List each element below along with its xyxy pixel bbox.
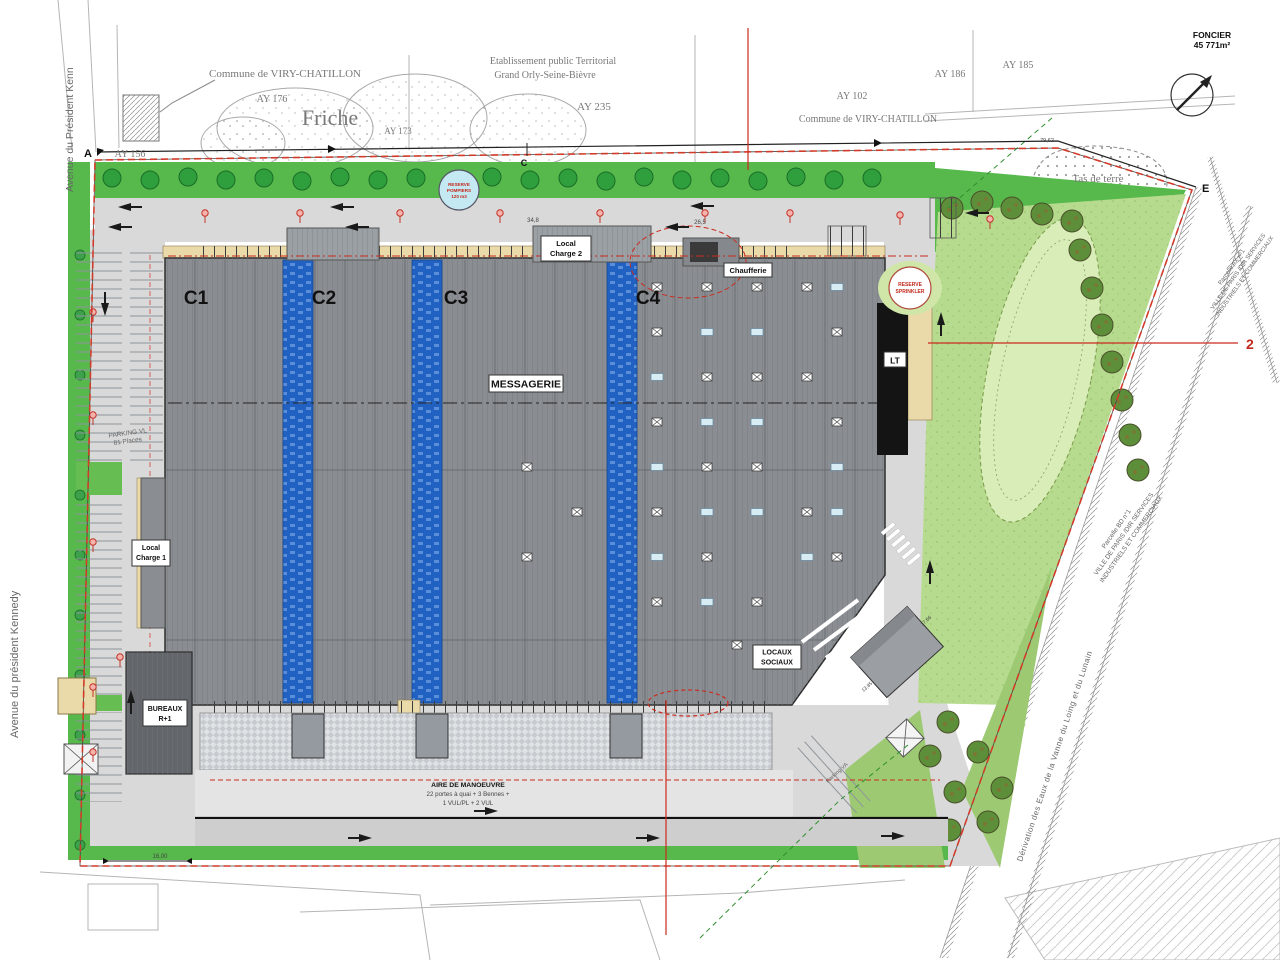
label-cell-c4: C4 xyxy=(636,288,661,309)
label-ay185: AY 185 xyxy=(1003,60,1034,71)
label-bureaux: BUREAUX xyxy=(148,706,183,713)
label-foncier: FONCIER xyxy=(1193,30,1231,40)
label-point-e: E xyxy=(1202,183,1209,195)
label-aire-manoeuvre: AIRE DE MANOEUVRE xyxy=(431,782,505,789)
label-ay176: AY 176 xyxy=(257,94,288,105)
svg-text:22 portes à quai + 3 Bennes +: 22 portes à quai + 3 Bennes + xyxy=(427,791,510,798)
label-commune-ne: Commune de VIRY-CHATILLON xyxy=(799,114,937,125)
label-avenue-left: Avenue du président Kennedy xyxy=(9,590,21,738)
svg-text:Charge 2: Charge 2 xyxy=(550,249,582,258)
label-ay102: AY 102 xyxy=(837,91,868,102)
label-ay235: AY 235 xyxy=(577,101,611,113)
label-friche: Friche xyxy=(302,105,358,130)
label-local-charge-2: Local xyxy=(556,239,576,248)
commune-leader-line xyxy=(160,80,215,112)
dim-26-5: 26,5 xyxy=(694,220,706,226)
label-ay186: AY 186 xyxy=(935,69,966,80)
label-messagerie: MESSAGERIE xyxy=(491,379,561,391)
mezzanine-band-2 xyxy=(412,260,442,703)
label-ay173: AY 173 xyxy=(384,126,412,136)
north-arrow-icon xyxy=(1171,74,1213,116)
label-ay156: AY 156 xyxy=(115,149,146,160)
svg-text:SPRINKLER: SPRINKLER xyxy=(896,289,925,295)
svg-text:120 m3: 120 m3 xyxy=(451,194,467,199)
svg-text:1 VUL/PL + 2 VUL: 1 VUL/PL + 2 VUL xyxy=(443,800,494,807)
dim-79-62: 79,62 xyxy=(1040,138,1054,144)
label-reserve-pompiers: RESERVE xyxy=(448,182,470,187)
label-point-c: C xyxy=(521,158,528,168)
label-ept-2: Grand Orly-Seine-Bièvre xyxy=(494,70,596,81)
northwest-hatched-building xyxy=(123,95,159,141)
label-local-charge-1: Local xyxy=(142,545,160,552)
label-avenue-top: Avenue du Président Kenn xyxy=(64,67,76,192)
label-locaux-sociaux: LOCAUX xyxy=(762,650,792,657)
mezzanine-band-1 xyxy=(283,260,313,703)
svg-text:R+1: R+1 xyxy=(158,716,171,723)
label-tas-de-terre: Tas de terre xyxy=(1072,173,1123,185)
label-cell-c1: C1 xyxy=(184,288,209,309)
label-cell-c2: C2 xyxy=(312,288,336,309)
dim-13-85: 13,85 xyxy=(861,681,874,694)
label-ref-2: 2 xyxy=(1246,336,1254,352)
svg-text:Charge 1: Charge 1 xyxy=(136,555,166,562)
label-chaufferie: Chaufferie xyxy=(729,266,766,275)
gatehouse xyxy=(58,678,96,714)
dim-34-8: 34,8 xyxy=(527,218,539,224)
label-foncier-area: 45 771m² xyxy=(1194,40,1231,50)
site-plan-page: MESSAGERIE C1 C2 C3 C4 Local Charge 2 Ch… xyxy=(0,0,1280,960)
label-cell-c3: C3 xyxy=(444,288,468,309)
lt-room xyxy=(877,303,908,455)
dock-apron xyxy=(200,713,772,770)
label-commune-nw: Commune de VIRY-CHATILLON xyxy=(209,68,361,80)
reserve-sprinkler-tank xyxy=(889,267,931,309)
mezzanine-band-3 xyxy=(607,260,637,703)
dim-16-00: 16,00 xyxy=(152,854,168,860)
label-reserve-sprinkler: RESERVE xyxy=(898,282,922,288)
label-ept-1: Etablissement public Territorial xyxy=(490,56,617,67)
svg-text:SOCIAUX: SOCIAUX xyxy=(761,660,793,667)
site-plan-drawing: MESSAGERIE C1 C2 C3 C4 Local Charge 2 Ch… xyxy=(0,0,1280,960)
svg-text:POMPIERS: POMPIERS xyxy=(447,188,471,193)
label-lt: LT xyxy=(890,356,901,366)
label-point-a: A xyxy=(84,148,92,160)
